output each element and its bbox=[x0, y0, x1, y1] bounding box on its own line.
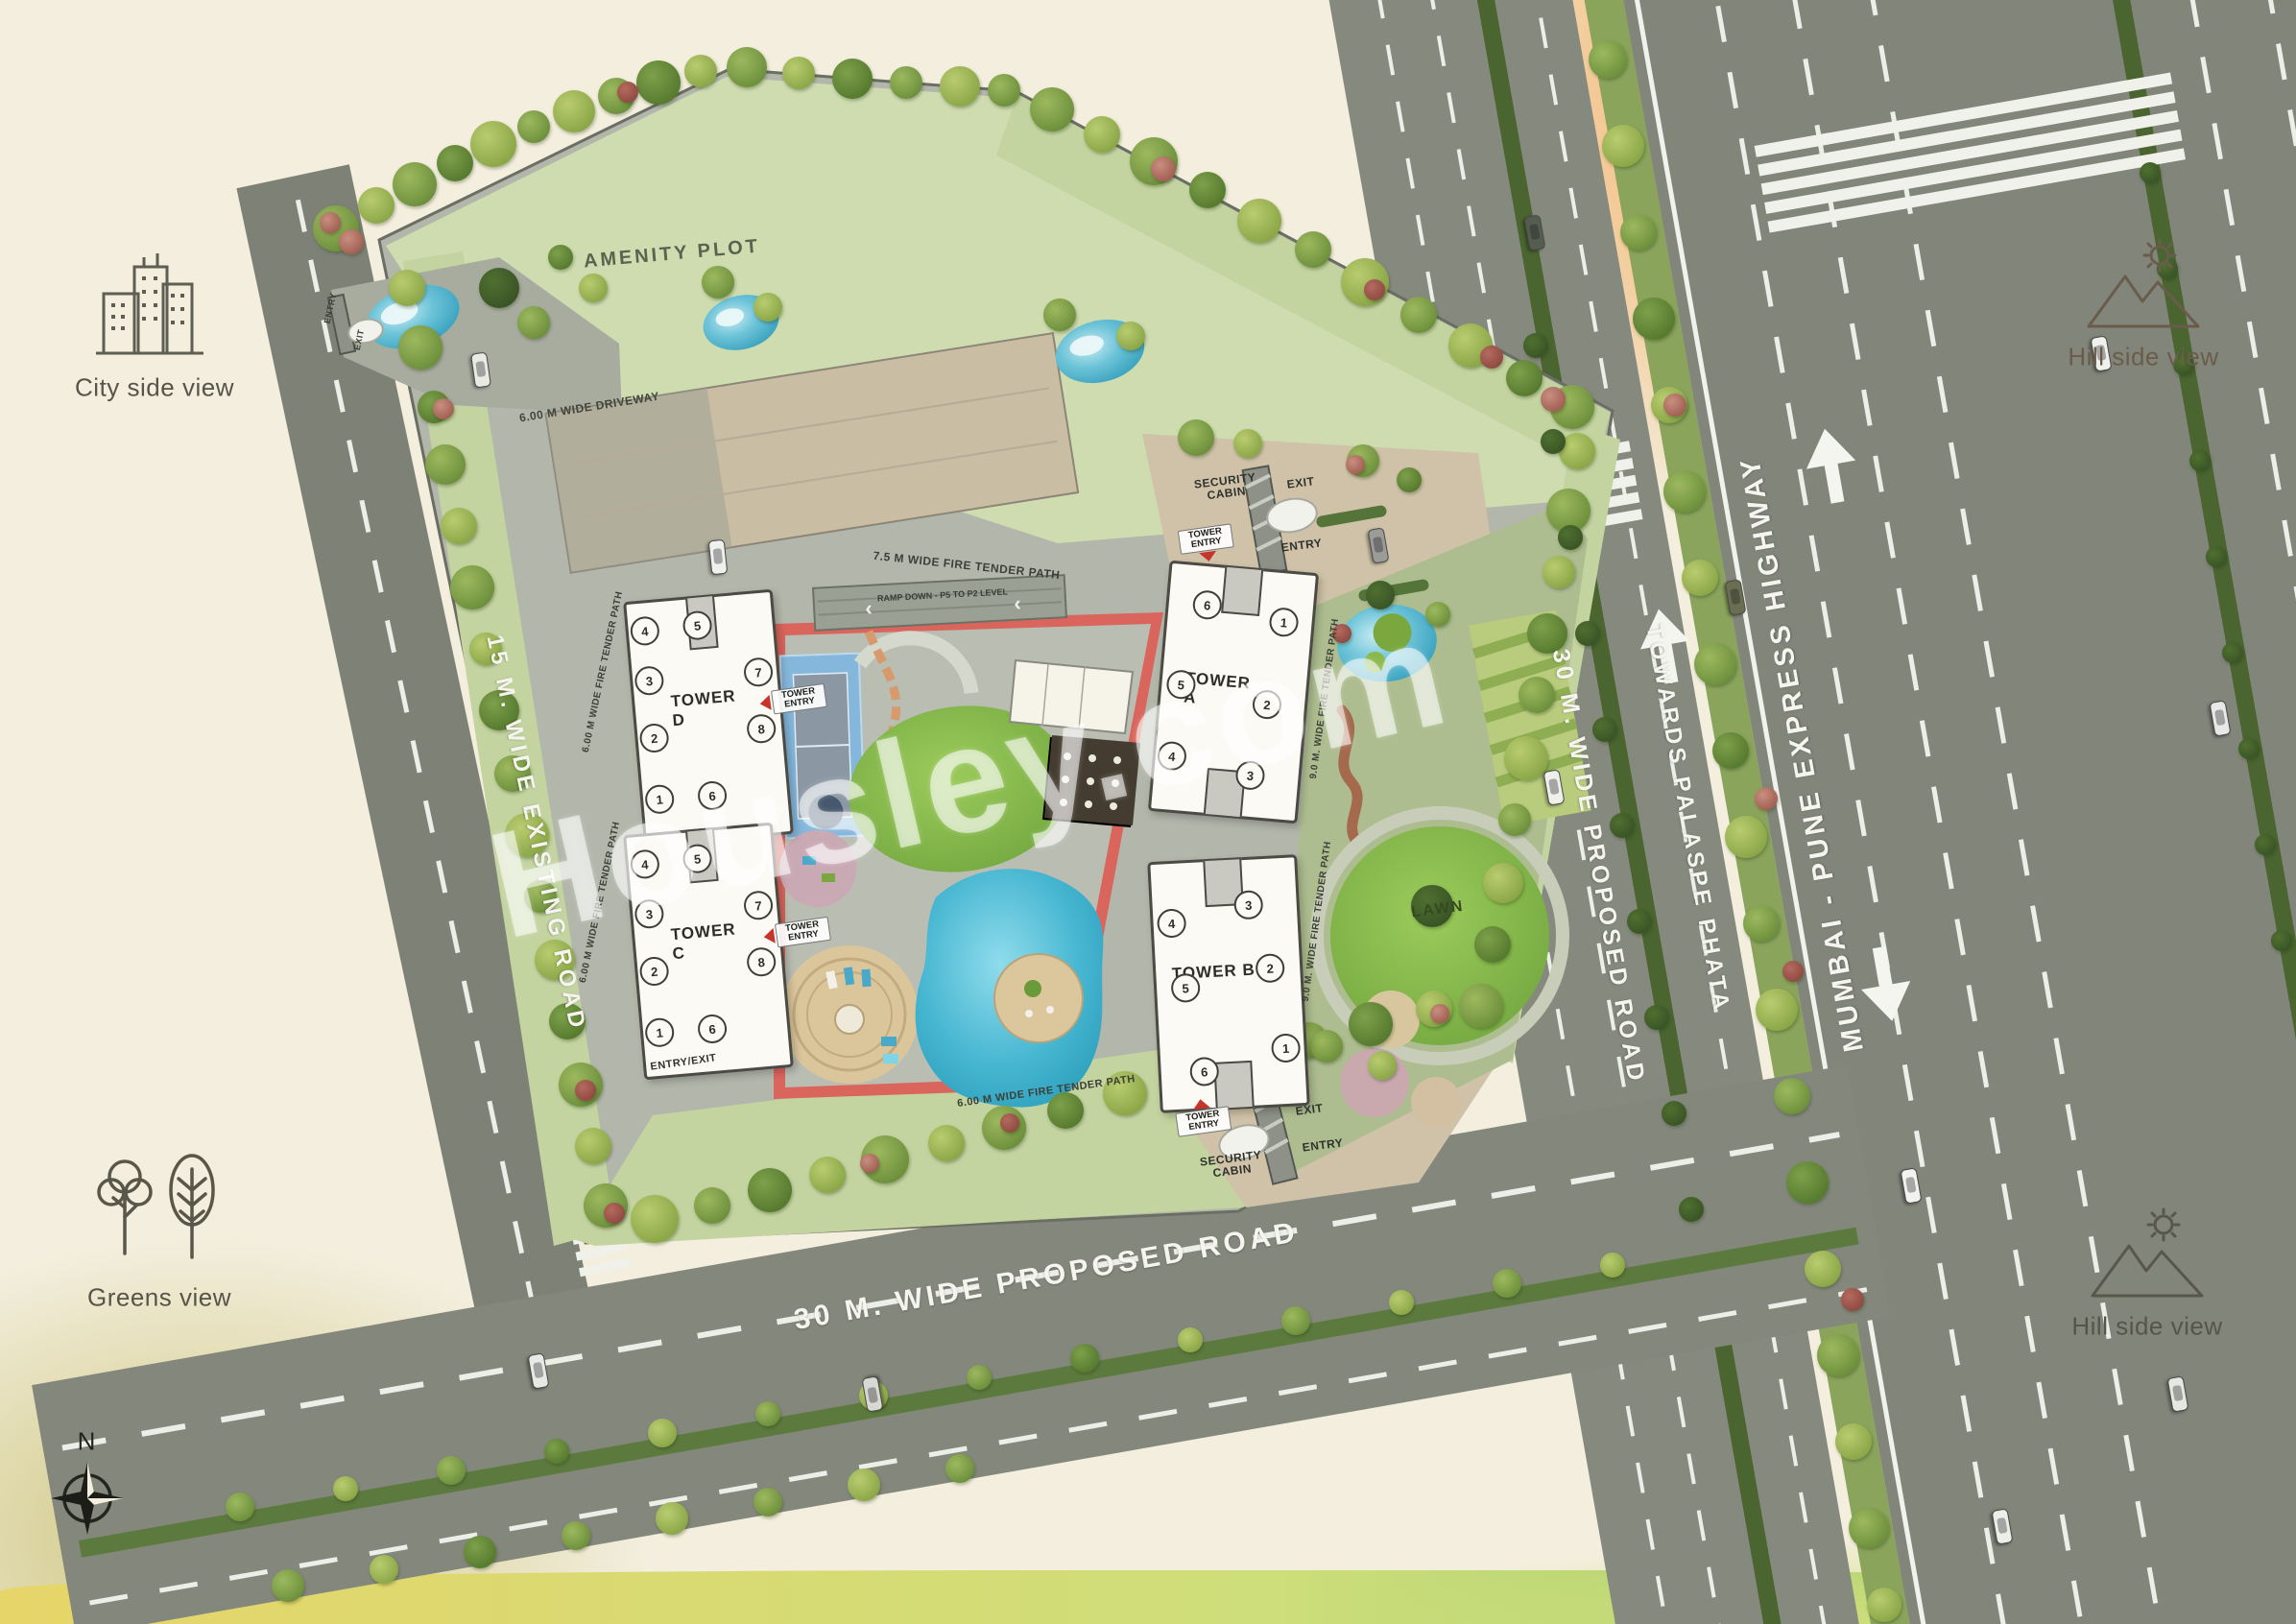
tree bbox=[2238, 738, 2260, 759]
tree bbox=[1047, 1092, 1084, 1129]
tree bbox=[684, 55, 717, 87]
tree bbox=[1178, 419, 1214, 456]
tree bbox=[848, 1469, 880, 1501]
tree bbox=[479, 268, 519, 308]
tree bbox=[1400, 297, 1437, 333]
shrub bbox=[1480, 346, 1503, 369]
tree bbox=[1805, 1251, 1841, 1287]
shrub bbox=[1000, 1113, 1019, 1133]
tree bbox=[450, 565, 494, 609]
tower-entry-arrow-icon bbox=[759, 695, 772, 711]
site-plan-canvas: TOWER D 4 5 3 7 2 8 1 6 TOWER C 4 5 3 7 … bbox=[0, 0, 2296, 1624]
tower-a-unit: 6 bbox=[1192, 589, 1224, 621]
tree bbox=[1504, 736, 1548, 780]
tree bbox=[1368, 1051, 1397, 1080]
tower-c-unit: 2 bbox=[638, 956, 670, 988]
tree bbox=[437, 1456, 466, 1485]
car-roof bbox=[1905, 1177, 1917, 1193]
greens-view-label: Greens view bbox=[87, 1283, 231, 1313]
tower-b: TOWER B 4 3 5 2 6 1 bbox=[1147, 854, 1309, 1113]
tree bbox=[967, 1365, 992, 1390]
tower-a-unit: 4 bbox=[1157, 740, 1188, 772]
tree bbox=[636, 60, 681, 105]
tree bbox=[1712, 732, 1749, 769]
tree bbox=[425, 444, 466, 485]
tree bbox=[1620, 214, 1657, 251]
tower-d-unit: 3 bbox=[634, 665, 665, 697]
city-buildings-icon bbox=[92, 251, 217, 367]
tree bbox=[1310, 1030, 1343, 1063]
car-roof bbox=[2172, 1385, 2184, 1401]
shrub bbox=[1841, 1288, 1864, 1311]
tree bbox=[2140, 162, 2161, 183]
tree bbox=[945, 1454, 974, 1483]
tree bbox=[1366, 581, 1395, 609]
car-roof bbox=[1529, 224, 1541, 240]
tower-d-unit: 2 bbox=[638, 723, 670, 754]
tree bbox=[437, 145, 473, 181]
tree bbox=[1237, 199, 1281, 243]
shrub bbox=[1782, 961, 1804, 982]
tree bbox=[2255, 834, 2276, 855]
car-roof bbox=[476, 361, 487, 377]
car bbox=[1543, 769, 1566, 805]
tree bbox=[272, 1569, 304, 1602]
tree bbox=[1281, 1306, 1310, 1335]
car bbox=[528, 1352, 550, 1389]
tree bbox=[1663, 470, 1706, 513]
hill-side-view-bottom-label: Hill side view bbox=[2071, 1312, 2222, 1342]
car-roof bbox=[2214, 709, 2226, 726]
tree bbox=[753, 1488, 782, 1517]
tree bbox=[1633, 298, 1675, 340]
tree bbox=[832, 59, 873, 99]
tree bbox=[1030, 87, 1074, 131]
car-roof bbox=[1548, 778, 1560, 795]
tree bbox=[753, 293, 782, 322]
tower-d-unit: 4 bbox=[630, 615, 661, 647]
tree bbox=[1644, 1005, 1669, 1030]
tree bbox=[1725, 816, 1767, 858]
car bbox=[1725, 579, 1747, 615]
tower-c: TOWER C 4 5 3 7 2 8 1 6 bbox=[623, 823, 794, 1081]
tower-a-unit: 2 bbox=[1252, 689, 1283, 721]
shrub bbox=[1364, 279, 1385, 300]
car bbox=[708, 539, 729, 576]
tree bbox=[358, 187, 395, 224]
tree bbox=[694, 1187, 730, 1224]
tree bbox=[1849, 1508, 1889, 1548]
tower-c-unit: 1 bbox=[644, 1017, 676, 1049]
tower-d-unit: 6 bbox=[697, 780, 729, 812]
car bbox=[1901, 1167, 1923, 1204]
tree bbox=[1627, 909, 1652, 934]
car-roof bbox=[1373, 537, 1384, 553]
tree bbox=[631, 1195, 679, 1243]
car bbox=[1524, 214, 1546, 251]
ramp-chevron-icon: ‹ bbox=[865, 596, 873, 621]
tree bbox=[562, 1521, 590, 1550]
tree bbox=[2222, 642, 2243, 663]
tower-b-unit: 4 bbox=[1157, 908, 1187, 939]
tree bbox=[1178, 1327, 1203, 1352]
car-roof bbox=[1730, 588, 1741, 605]
tree bbox=[1506, 360, 1543, 396]
tower-b-unit: 5 bbox=[1170, 973, 1201, 1004]
tree bbox=[1774, 1078, 1810, 1114]
tree bbox=[1070, 1344, 1099, 1373]
tree bbox=[656, 1502, 688, 1535]
trees-icon bbox=[84, 1140, 238, 1284]
shrub bbox=[860, 1154, 879, 1173]
tree bbox=[1349, 1002, 1393, 1046]
tree bbox=[1519, 677, 1555, 713]
tree bbox=[2206, 546, 2227, 567]
tree bbox=[1295, 231, 1331, 268]
tree bbox=[1543, 556, 1575, 588]
tree bbox=[1189, 172, 1226, 208]
tower-d: TOWER D 4 5 3 7 2 8 1 6 bbox=[623, 589, 794, 848]
tree bbox=[748, 1168, 792, 1212]
tree bbox=[1743, 905, 1780, 942]
tower-c-unit: 6 bbox=[697, 1014, 729, 1045]
tree bbox=[544, 1439, 569, 1464]
tree bbox=[1498, 803, 1531, 836]
tree bbox=[1483, 863, 1523, 903]
tree bbox=[2271, 930, 2292, 951]
tree bbox=[1592, 717, 1617, 742]
tower-c-unit: 3 bbox=[634, 898, 665, 930]
tree bbox=[809, 1157, 846, 1193]
car-roof bbox=[713, 548, 724, 564]
tree bbox=[1575, 621, 1600, 646]
car bbox=[2210, 700, 2232, 736]
tree bbox=[1493, 1269, 1521, 1298]
tree bbox=[370, 1555, 398, 1584]
tree bbox=[1835, 1423, 1872, 1460]
tower-c-unit: 8 bbox=[746, 946, 777, 978]
tree bbox=[940, 66, 980, 107]
tree bbox=[1817, 1334, 1859, 1376]
tower-d-label: TOWER D bbox=[670, 686, 745, 730]
tree bbox=[1233, 429, 1262, 458]
hill-side-view-top-label: Hill side view bbox=[2068, 343, 2218, 372]
tree bbox=[393, 162, 437, 206]
shrub bbox=[433, 398, 454, 419]
tree bbox=[575, 1128, 611, 1164]
tree bbox=[1600, 1253, 1625, 1278]
compass-n-label: N bbox=[78, 1427, 96, 1457]
tree bbox=[1425, 602, 1450, 627]
tree-layer bbox=[0, 0, 2296, 1624]
tree bbox=[702, 266, 734, 299]
tower-c-unit: 7 bbox=[743, 890, 775, 921]
tower-b-unit: 2 bbox=[1255, 953, 1285, 984]
shrub bbox=[604, 1203, 625, 1224]
shrub bbox=[1430, 1004, 1449, 1023]
tree bbox=[333, 1476, 358, 1501]
tree bbox=[1459, 984, 1503, 1028]
tree bbox=[517, 110, 550, 143]
car bbox=[1368, 527, 1390, 563]
compass-rose-icon bbox=[46, 1457, 129, 1540]
tree bbox=[1389, 1290, 1414, 1315]
tower-entry-arrow-icon bbox=[763, 928, 776, 944]
tree bbox=[1786, 1161, 1829, 1204]
tree bbox=[928, 1125, 965, 1161]
tree bbox=[579, 274, 608, 302]
tower-b-unit: 1 bbox=[1271, 1033, 1302, 1063]
tree bbox=[1694, 643, 1736, 685]
car-roof bbox=[867, 1387, 878, 1403]
tree bbox=[1679, 1197, 1704, 1222]
shrub bbox=[339, 229, 364, 254]
tree bbox=[1116, 322, 1145, 350]
tree bbox=[755, 1401, 780, 1426]
tree bbox=[1523, 333, 1548, 358]
tower-a: TOWER A 6 1 5 2 4 3 bbox=[1148, 561, 1319, 824]
tower-d-unit: 1 bbox=[644, 784, 676, 816]
tree bbox=[1589, 40, 1627, 79]
tree bbox=[1043, 299, 1076, 331]
shrub bbox=[1663, 394, 1686, 417]
tree bbox=[782, 57, 815, 89]
ramp-chevron-icon: ‹ bbox=[1014, 591, 1022, 616]
tree bbox=[398, 325, 442, 370]
car bbox=[470, 351, 491, 388]
tree bbox=[1610, 813, 1635, 838]
tree bbox=[2189, 450, 2211, 471]
tree bbox=[389, 270, 425, 306]
car-roof bbox=[1997, 1517, 2008, 1534]
shrub bbox=[1151, 156, 1176, 181]
tree bbox=[553, 90, 595, 132]
tree bbox=[226, 1493, 254, 1521]
hill-sun-icon bbox=[2085, 1207, 2212, 1313]
tree bbox=[1397, 467, 1422, 492]
car-roof bbox=[533, 1362, 544, 1378]
shrub bbox=[1346, 455, 1365, 474]
tower-b-unit: 3 bbox=[1233, 890, 1264, 920]
tree bbox=[1756, 989, 1798, 1031]
tree bbox=[517, 306, 550, 339]
tree bbox=[464, 1536, 496, 1568]
tower-a-core-top bbox=[1221, 565, 1263, 616]
tree bbox=[1084, 116, 1120, 153]
tower-c-unit: 4 bbox=[630, 848, 661, 880]
tower-a-unit: 1 bbox=[1268, 607, 1300, 638]
hill-sun-icon bbox=[2081, 238, 2208, 344]
car bbox=[1992, 1508, 2014, 1544]
tree bbox=[441, 508, 477, 544]
shrub bbox=[320, 212, 341, 233]
shrub bbox=[1541, 387, 1566, 412]
tower-c-label: TOWER C bbox=[670, 919, 745, 964]
tree bbox=[548, 245, 573, 270]
tree bbox=[1602, 125, 1644, 167]
tower-d-unit: 8 bbox=[746, 713, 777, 745]
shrub bbox=[575, 1080, 596, 1101]
shrub bbox=[1755, 787, 1778, 810]
tree bbox=[1682, 560, 1718, 596]
tree bbox=[1527, 613, 1567, 654]
city-side-view-label: City side view bbox=[75, 373, 234, 403]
tree bbox=[988, 74, 1020, 107]
shrub bbox=[617, 82, 638, 103]
tree bbox=[890, 66, 922, 99]
tree bbox=[1541, 429, 1566, 454]
car bbox=[2167, 1375, 2189, 1412]
tree bbox=[1662, 1101, 1686, 1126]
tree bbox=[1474, 926, 1511, 963]
tree bbox=[470, 121, 516, 167]
tree bbox=[1867, 1588, 1901, 1622]
tree bbox=[648, 1419, 677, 1447]
tree bbox=[1558, 525, 1583, 550]
tree bbox=[727, 47, 767, 87]
tower-d-unit: 7 bbox=[743, 657, 775, 688]
